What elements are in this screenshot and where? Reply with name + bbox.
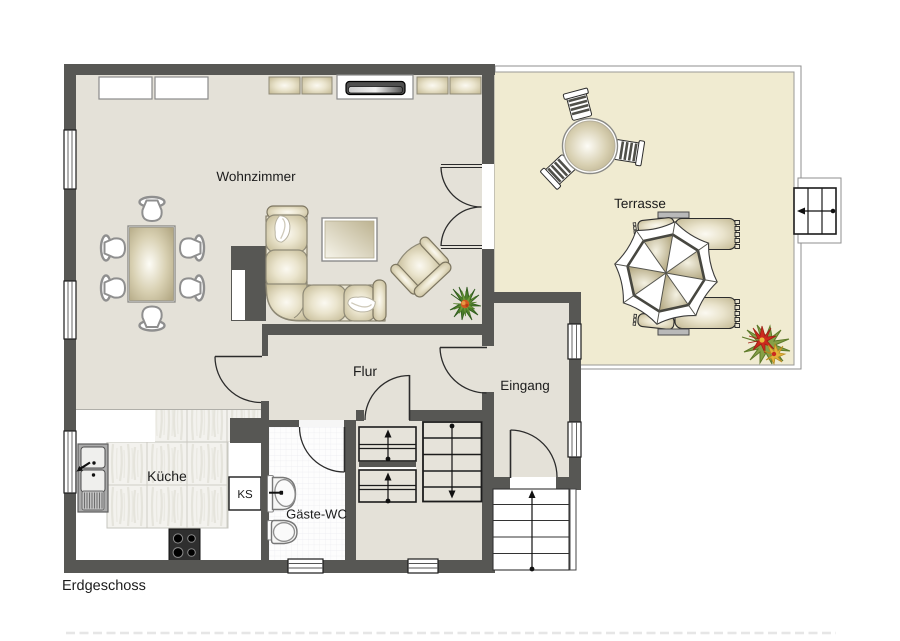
svg-text:Eingang: Eingang: [500, 378, 550, 393]
svg-text:Erdgeschoss: Erdgeschoss: [62, 578, 146, 594]
svg-text:Terrasse: Terrasse: [614, 196, 666, 211]
svg-text:Gäste-WC: Gäste-WC: [286, 507, 347, 522]
svg-text:Wohnzimmer: Wohnzimmer: [216, 169, 296, 184]
svg-text:Küche: Küche: [147, 468, 187, 484]
svg-text:Flur: Flur: [353, 363, 377, 379]
svg-text:KS: KS: [237, 489, 253, 501]
